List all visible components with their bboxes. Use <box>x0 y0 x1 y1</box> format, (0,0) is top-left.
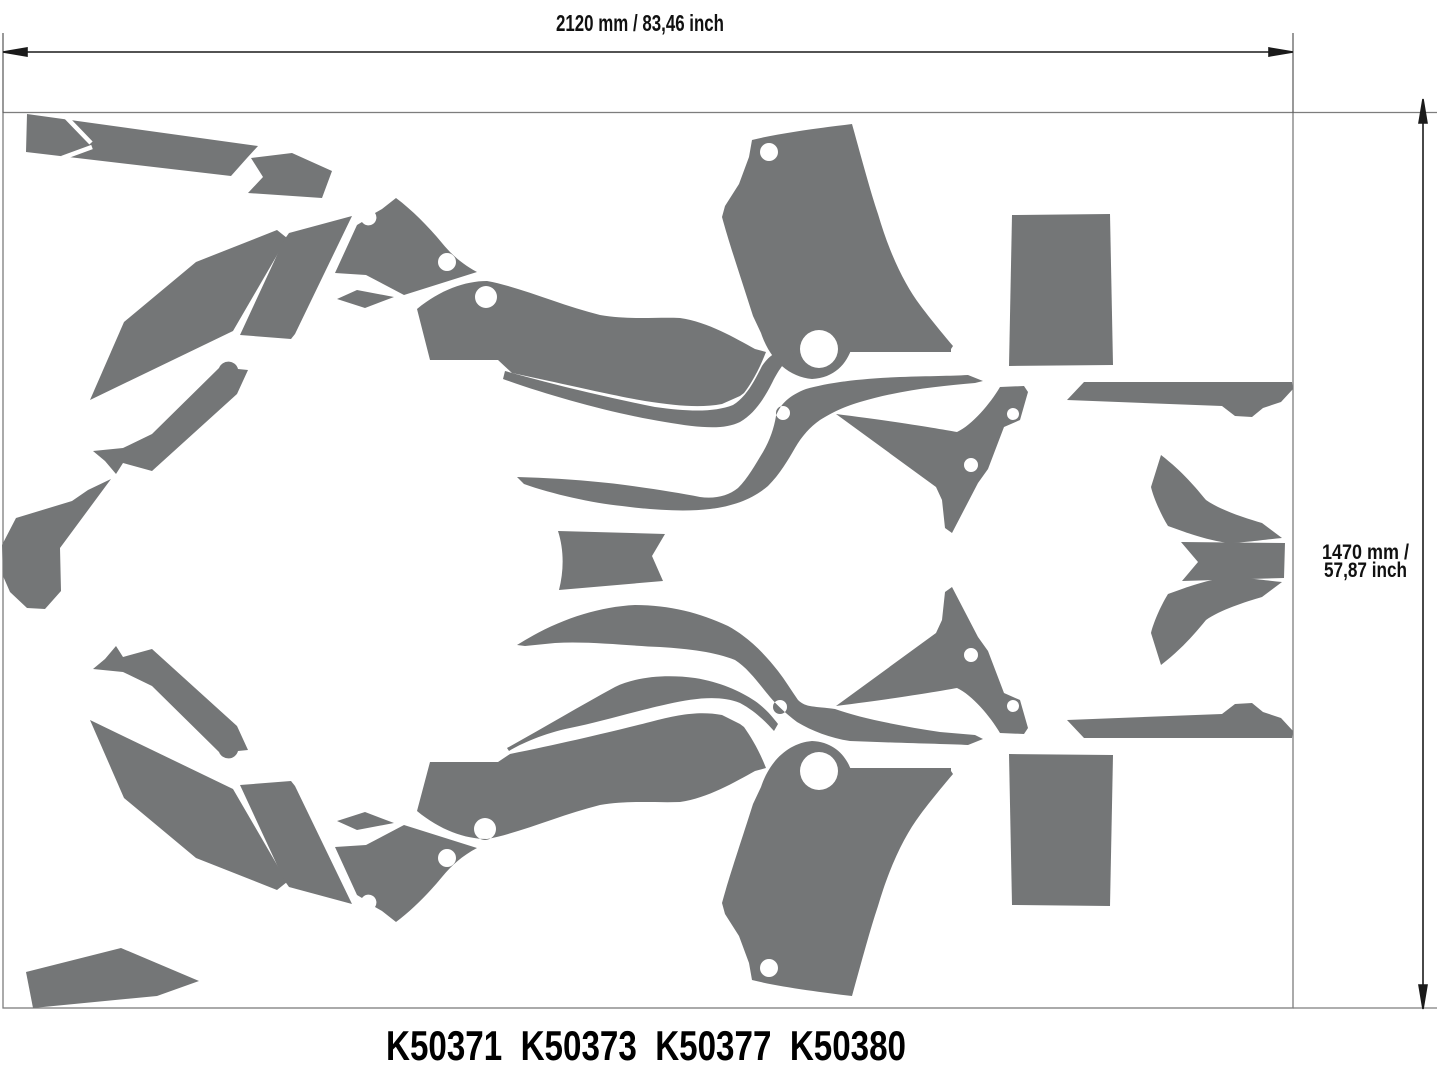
svg-text:K50371 K50373 K50377 K50380: K50371 K50373 K50377 K50380 <box>386 1022 906 1069</box>
svg-text:57,87 inch: 57,87 inch <box>1324 559 1407 582</box>
svg-text:2120 mm / 83,46 inch: 2120 mm / 83,46 inch <box>556 10 724 36</box>
